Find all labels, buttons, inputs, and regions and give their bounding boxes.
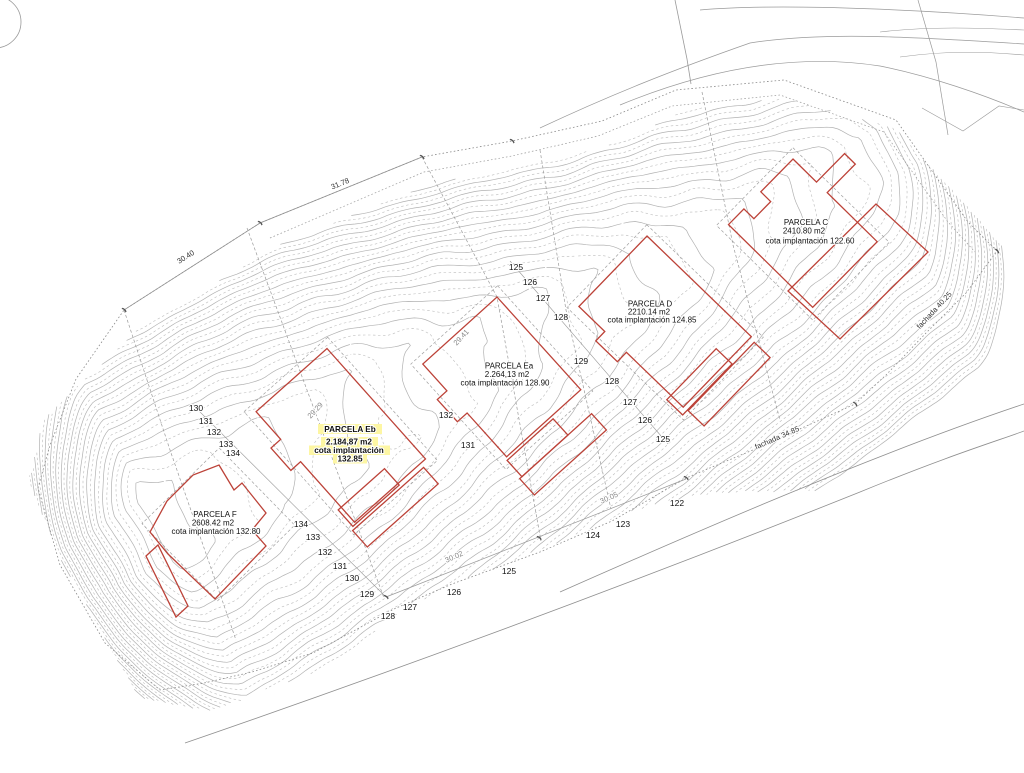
svg-text:131: 131 bbox=[199, 416, 213, 426]
svg-text:128: 128 bbox=[605, 376, 619, 386]
svg-text:129: 129 bbox=[360, 589, 374, 599]
svg-text:132: 132 bbox=[207, 427, 221, 437]
svg-text:cota implantación 132.80: cota implantación 132.80 bbox=[172, 527, 262, 536]
svg-text:128: 128 bbox=[554, 312, 568, 322]
svg-text:123: 123 bbox=[616, 519, 630, 529]
svg-text:128: 128 bbox=[381, 611, 395, 621]
svg-text:cota implantación 122.60: cota implantación 122.60 bbox=[766, 237, 856, 246]
svg-text:130: 130 bbox=[345, 573, 359, 583]
svg-text:cota implantación 128.90: cota implantación 128.90 bbox=[461, 379, 551, 388]
svg-text:124: 124 bbox=[586, 530, 600, 540]
svg-text:127: 127 bbox=[403, 602, 417, 612]
svg-text:132: 132 bbox=[318, 547, 332, 557]
svg-text:125: 125 bbox=[509, 262, 523, 272]
svg-text:2410.80 m2: 2410.80 m2 bbox=[783, 227, 826, 236]
svg-text:132.85: 132.85 bbox=[337, 455, 362, 464]
svg-text:132: 132 bbox=[439, 410, 453, 420]
svg-text:PARCELA Eb: PARCELA Eb bbox=[324, 425, 375, 434]
svg-text:125: 125 bbox=[502, 566, 516, 576]
svg-text:126: 126 bbox=[523, 277, 537, 287]
svg-text:131: 131 bbox=[333, 561, 347, 571]
svg-text:126: 126 bbox=[447, 587, 461, 597]
svg-text:134: 134 bbox=[226, 448, 240, 458]
svg-text:127: 127 bbox=[623, 397, 637, 407]
svg-text:129: 129 bbox=[574, 356, 588, 366]
svg-text:131: 131 bbox=[461, 440, 475, 450]
svg-text:cota implantación 124.85: cota implantación 124.85 bbox=[608, 316, 698, 325]
svg-text:126: 126 bbox=[638, 415, 652, 425]
svg-text:122: 122 bbox=[670, 498, 684, 508]
svg-text:133: 133 bbox=[306, 532, 320, 542]
svg-text:130: 130 bbox=[189, 403, 203, 413]
svg-text:127: 127 bbox=[536, 293, 550, 303]
svg-text:125: 125 bbox=[656, 434, 670, 444]
svg-text:134: 134 bbox=[294, 519, 308, 529]
